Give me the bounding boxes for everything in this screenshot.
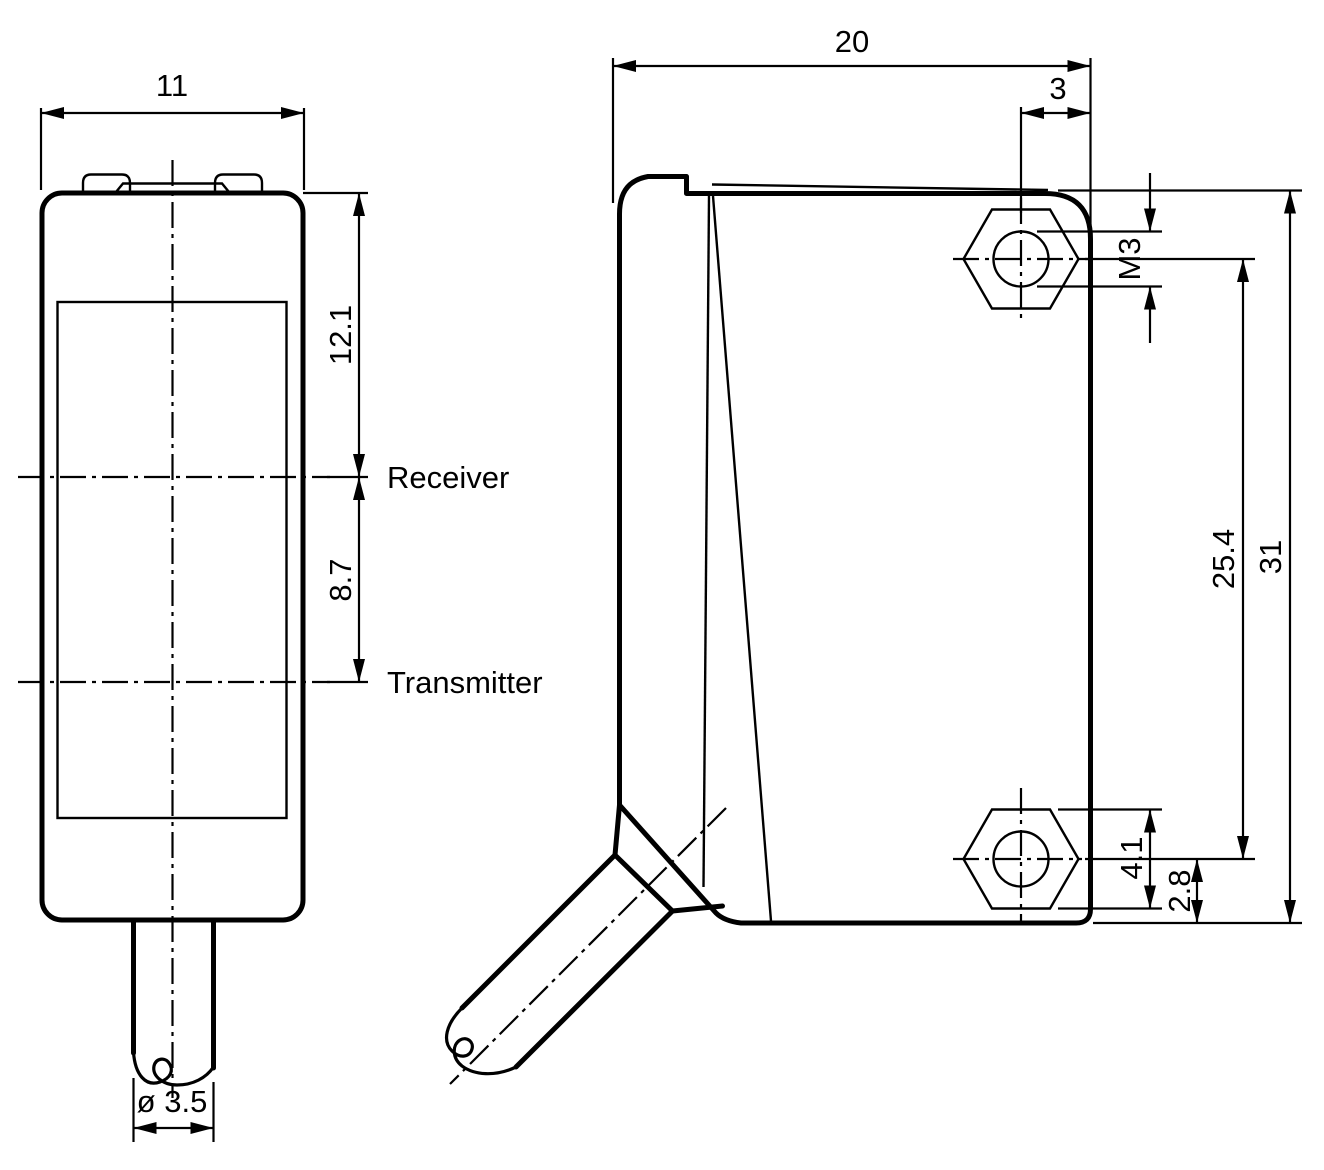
dim-hole-to-bottom-label: 2.8 — [1162, 869, 1197, 912]
dim-width-label: 11 — [156, 68, 188, 103]
dim-depth-label: 20 — [835, 24, 869, 59]
dim-hole-spacing-label: 25.4 — [1206, 529, 1241, 589]
side-view: 20 3 M3 25.4 31 4.1 2.8 — [447, 24, 1302, 1084]
drawing-canvas: 11 12.1 8.7 Receiver Transmitter ø 3.5 — [0, 0, 1324, 1170]
side-cable-break-squiggle — [447, 1008, 516, 1074]
receiver-label: Receiver — [387, 460, 509, 495]
dim-cable-diameter-label: ø 3.5 — [137, 1084, 208, 1119]
side-cable-upper-edge — [462, 855, 615, 1008]
cable-axis-centerline — [450, 808, 726, 1084]
dimension-drawing: 11 12.1 8.7 Receiver Transmitter ø 3.5 — [0, 0, 1324, 1170]
transmitter-label: Transmitter — [387, 665, 543, 700]
sensor-side-body-outline — [620, 177, 1091, 924]
dim-receiver-from-top-label: 12.1 — [323, 305, 358, 365]
dim-height-label: 31 — [1253, 540, 1288, 574]
front-view: 11 12.1 8.7 Receiver Transmitter ø 3.5 — [18, 68, 543, 1142]
side-cable-lower-edge — [516, 911, 673, 1067]
boot-outer-corner — [615, 805, 620, 855]
dim-nut-across-flats-label: 4.1 — [1114, 836, 1149, 879]
boot-front-face — [616, 856, 673, 911]
dim-receiver-to-transmitter-label: 8.7 — [323, 558, 358, 601]
dim-hole-to-edge-label: 3 — [1049, 71, 1066, 106]
side-lid-edge — [712, 185, 1048, 191]
